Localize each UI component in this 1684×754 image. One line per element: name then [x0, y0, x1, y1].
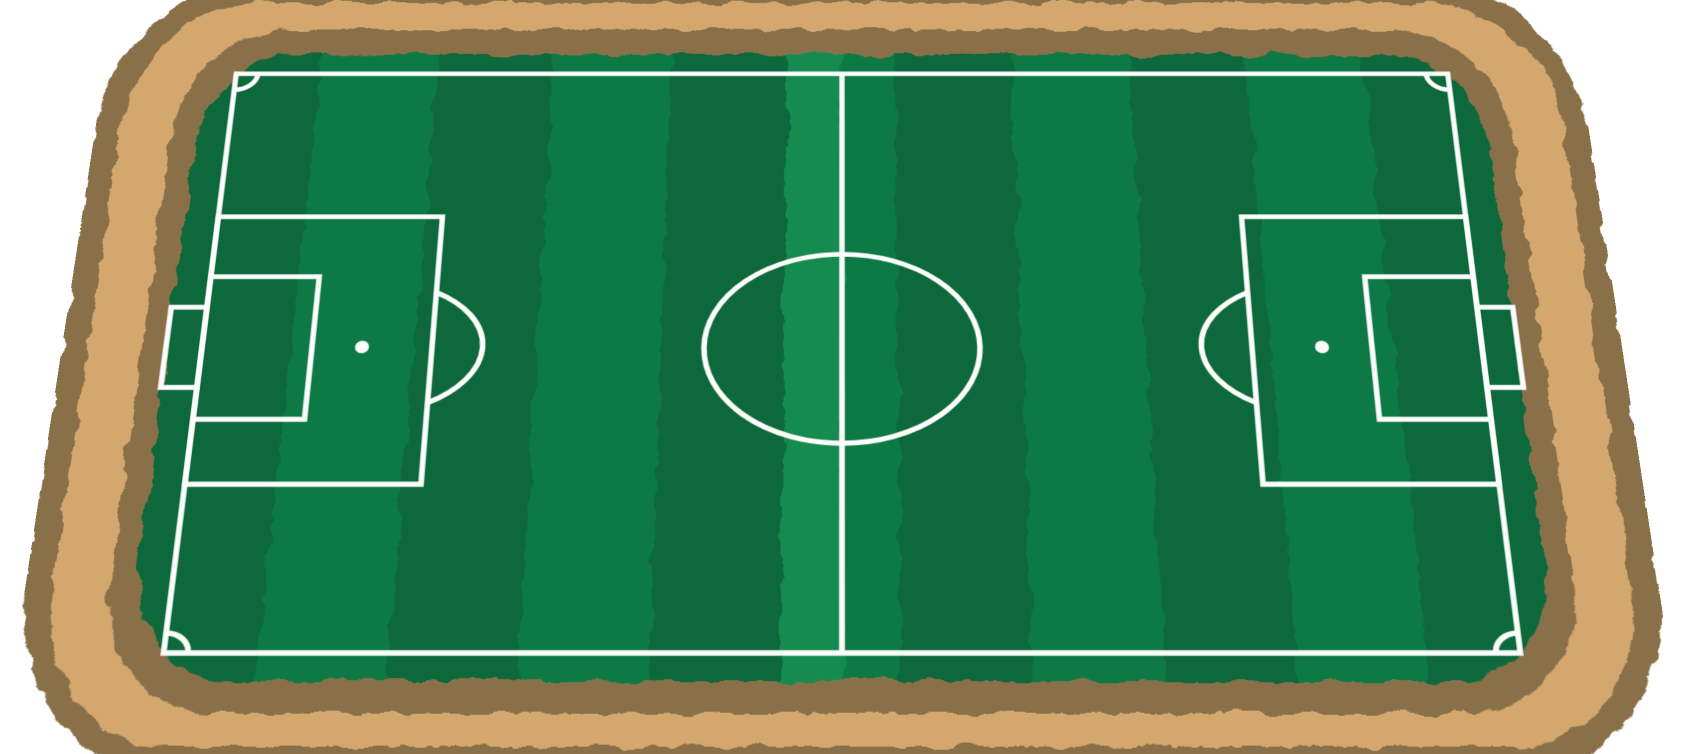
ground-plane — [0, 0, 1684, 754]
grass-stripe — [842, 55, 902, 681]
field-illustration — [0, 0, 1684, 754]
grass-stripe — [895, 55, 1034, 681]
grass-stripe — [780, 55, 842, 681]
perspective-scene — [0, 0, 1684, 754]
field-svg — [0, 0, 1684, 754]
grass-stripe — [649, 55, 787, 681]
